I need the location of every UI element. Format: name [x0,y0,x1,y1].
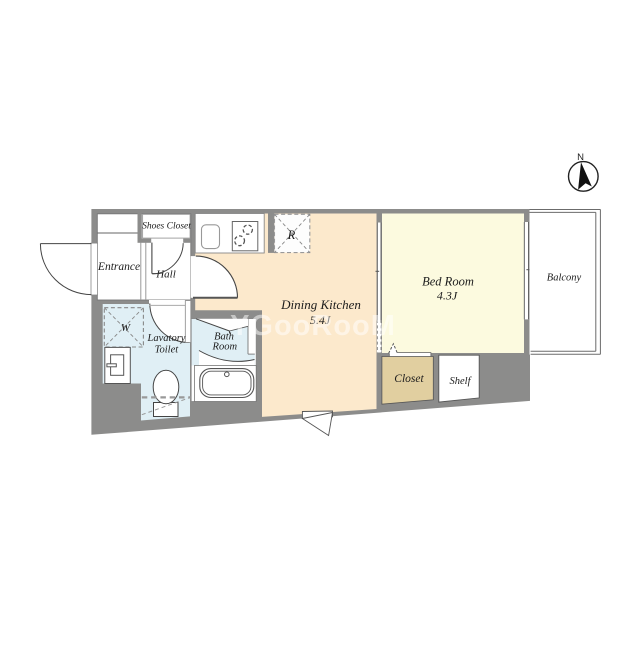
svg-text:YGooRooM: YGooRooM [230,310,396,342]
svg-text:Shoes Closet: Shoes Closet [142,222,191,232]
svg-text:Lavatory: Lavatory [147,333,186,344]
svg-text:Room: Room [212,342,238,353]
svg-text:W: W [121,322,131,334]
svg-text:Balcony: Balcony [547,273,582,284]
svg-text:Bed Room: Bed Room [422,275,474,289]
svg-text:Shelf: Shelf [450,376,473,387]
svg-text:Entrance: Entrance [97,261,140,273]
svg-text:R: R [287,228,296,242]
svg-text:4.3J: 4.3J [437,289,458,303]
svg-text:Toilet: Toilet [155,345,180,356]
svg-text:Closet: Closet [394,373,424,385]
